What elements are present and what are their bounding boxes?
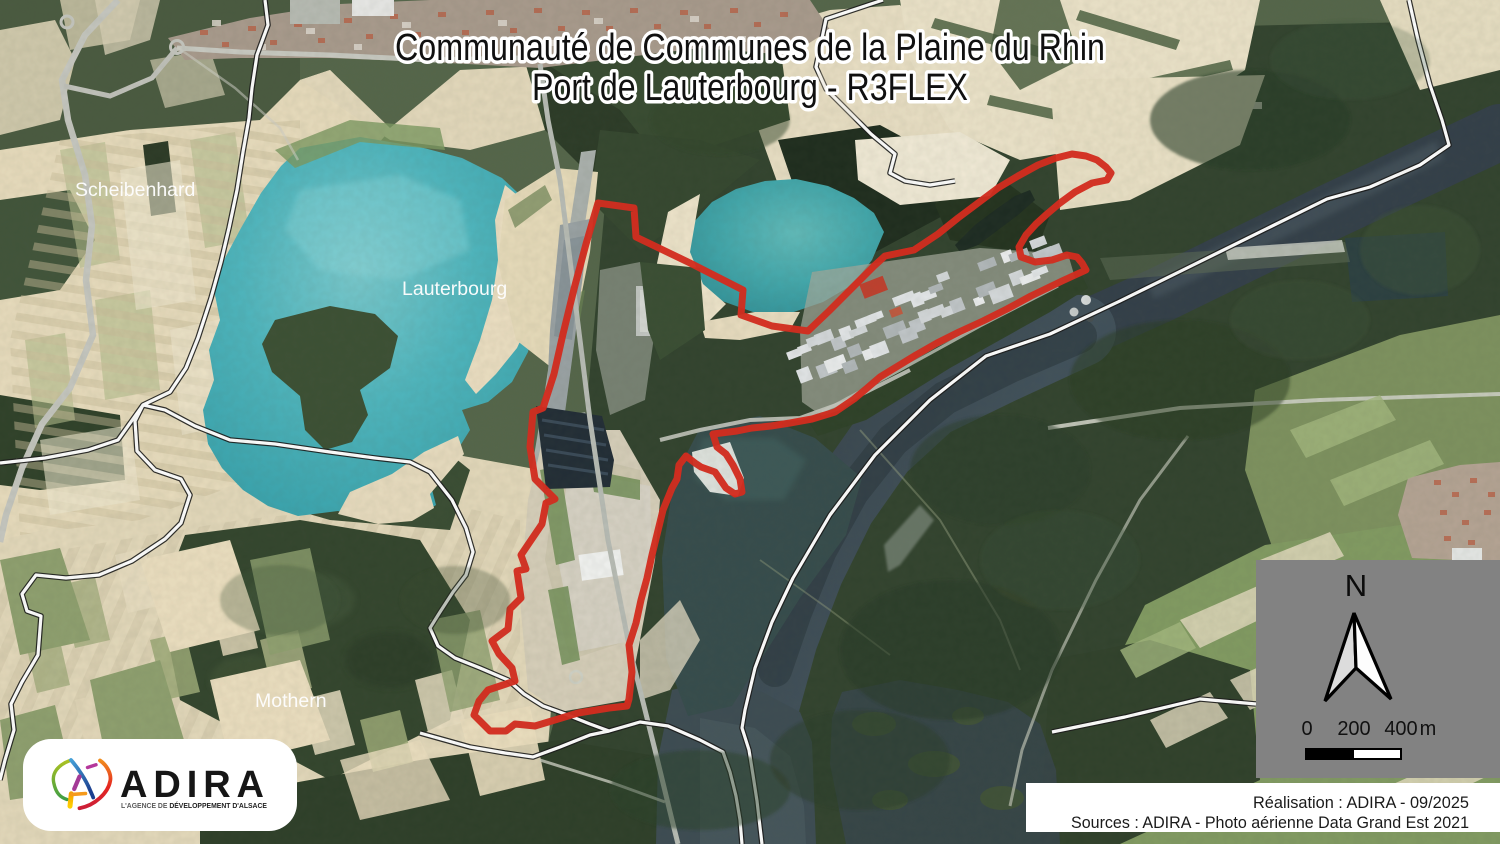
svg-text:ADIRA: ADIRA [120,764,264,806]
svg-text:L'AGENCE DE DÉVELOPPEMENT D'AL: L'AGENCE DE DÉVELOPPEMENT D'ALSACE [121,801,267,810]
svg-text:N: N [1345,568,1367,603]
svg-text:Sources : ADIRA - Photo aérien: Sources : ADIRA - Photo aérienne Data Gr… [1071,813,1469,832]
svg-text:0: 0 [1301,718,1312,740]
svg-text:Scheibenhard: Scheibenhard [75,179,195,201]
svg-text:Lauterbourg: Lauterbourg [402,278,507,300]
svg-text:400: 400 [1384,718,1417,740]
svg-text:m: m [1420,718,1437,740]
svg-text:Port de Lauterbourg - R3FLEX: Port de Lauterbourg - R3FLEX [532,67,968,109]
svg-text:Mothern: Mothern [255,690,327,712]
svg-text:Communauté de Communes de la P: Communauté de Communes de la Plaine du R… [395,27,1105,69]
svg-text:200: 200 [1337,718,1370,740]
svg-text:Réalisation : ADIRA - 09/2025: Réalisation : ADIRA - 09/2025 [1253,793,1469,812]
